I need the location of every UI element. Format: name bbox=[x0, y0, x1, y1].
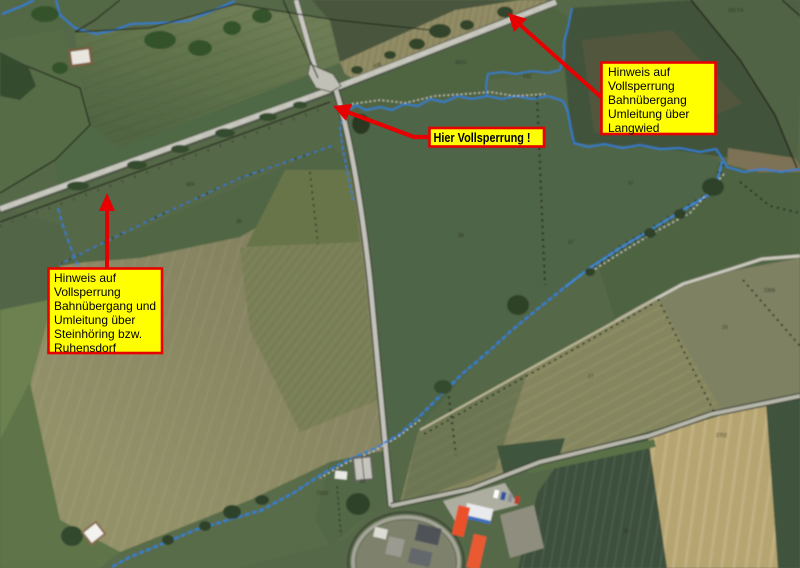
svg-text:37: 37 bbox=[628, 181, 634, 187]
svg-text:27: 27 bbox=[588, 374, 594, 380]
svg-text:Vollsperrung: Vollsperrung bbox=[54, 285, 121, 299]
svg-text:37: 37 bbox=[568, 240, 574, 246]
svg-text:424: 424 bbox=[186, 182, 195, 188]
svg-text:Hinweis auf: Hinweis auf bbox=[54, 271, 117, 285]
svg-text:Umleitung über: Umleitung über bbox=[54, 313, 135, 327]
svg-text:Hier Vollsperrung !: Hier Vollsperrung ! bbox=[434, 130, 531, 145]
svg-text:2702: 2702 bbox=[716, 433, 727, 439]
svg-text:Bahnübergang: Bahnübergang bbox=[608, 93, 687, 107]
svg-text:Vollsperrung: Vollsperrung bbox=[608, 79, 675, 93]
svg-text:Umleitung über: Umleitung über bbox=[608, 107, 689, 121]
svg-text:432: 432 bbox=[523, 74, 532, 80]
svg-text:Ruhensdorf: Ruhensdorf bbox=[54, 341, 117, 355]
svg-text:28: 28 bbox=[623, 529, 629, 535]
svg-text:43/11: 43/11 bbox=[455, 60, 467, 66]
svg-text:Steinhöring bzw.: Steinhöring bzw. bbox=[54, 327, 142, 341]
svg-text:2306: 2306 bbox=[764, 288, 775, 294]
svg-text:38: 38 bbox=[458, 233, 464, 239]
svg-text:38: 38 bbox=[236, 219, 242, 225]
svg-text:2517/4: 2517/4 bbox=[728, 8, 744, 14]
svg-text:32: 32 bbox=[360, 479, 366, 485]
svg-text:Langwied: Langwied bbox=[608, 121, 659, 135]
svg-text:Bahnübergang und: Bahnübergang und bbox=[54, 299, 156, 313]
svg-text:720/2: 720/2 bbox=[316, 491, 329, 497]
svg-text:Hinweis auf: Hinweis auf bbox=[608, 65, 671, 79]
svg-text:24: 24 bbox=[722, 325, 728, 331]
